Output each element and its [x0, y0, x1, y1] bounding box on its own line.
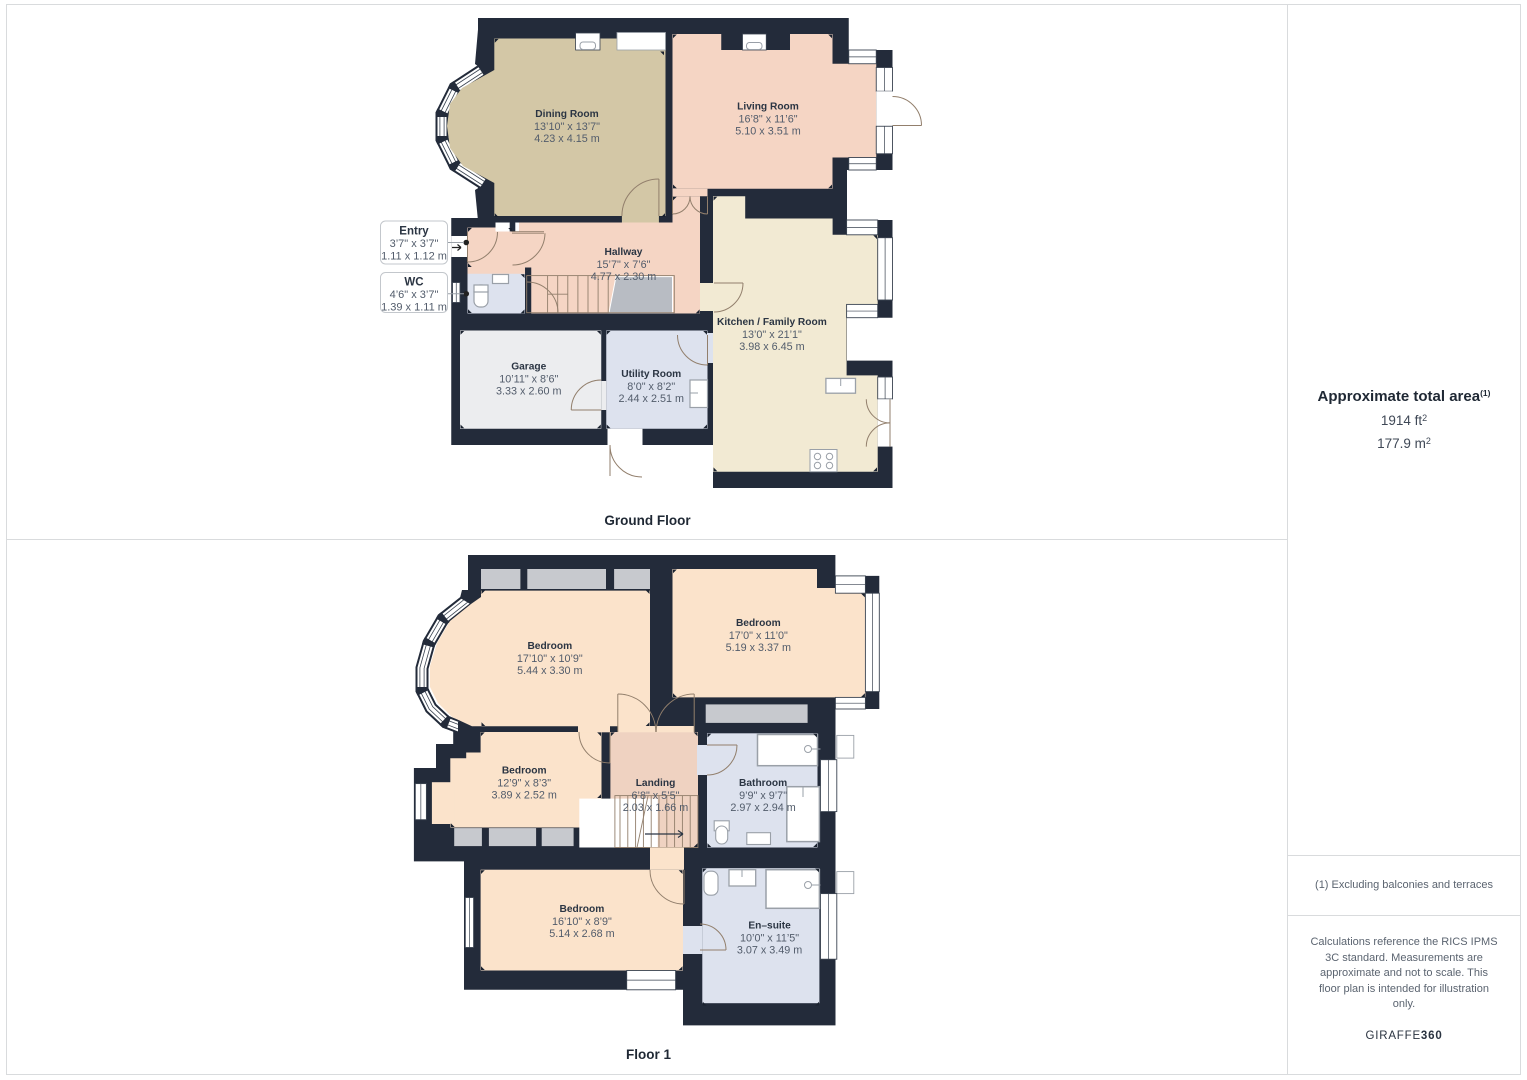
svg-text:3.89 x 2.52 m: 3.89 x 2.52 m	[491, 789, 556, 801]
svg-text:Bedroom: Bedroom	[502, 765, 547, 776]
svg-text:Landing: Landing	[636, 778, 676, 789]
svg-text:5.10 x 3.51 m: 5.10 x 3.51 m	[735, 126, 800, 138]
svg-text:Bedroom: Bedroom	[560, 904, 605, 915]
svg-text:5.14 x 2.68 m: 5.14 x 2.68 m	[549, 928, 614, 940]
svg-text:Kitchen / Family Room: Kitchen / Family Room	[717, 317, 827, 328]
svg-text:13’0" x 21’1": 13’0" x 21’1"	[742, 329, 802, 341]
svg-text:Bedroom: Bedroom	[527, 641, 572, 652]
svg-text:3’7" x 3’7": 3’7" x 3’7"	[390, 238, 439, 250]
svg-text:Living Room: Living Room	[737, 102, 799, 113]
svg-text:5.19 x 3.37 m: 5.19 x 3.37 m	[726, 642, 791, 654]
svg-text:Dining Room: Dining Room	[535, 109, 598, 120]
svg-text:Garage: Garage	[511, 362, 546, 373]
svg-text:Utility Room: Utility Room	[621, 369, 681, 380]
svg-text:16’10" x 8’9": 16’10" x 8’9"	[552, 916, 612, 928]
svg-text:4.77 x 2.30 m: 4.77 x 2.30 m	[591, 271, 656, 283]
svg-text:1.11 x 1.12 m: 1.11 x 1.12 m	[381, 251, 447, 263]
svg-text:Floor 1: Floor 1	[626, 1047, 671, 1062]
svg-text:6’8" x 5’5": 6’8" x 5’5"	[632, 790, 680, 802]
svg-text:2.97 x 2.94 m: 2.97 x 2.94 m	[730, 802, 795, 814]
svg-text:9’9" x 9’7": 9’9" x 9’7"	[739, 790, 787, 802]
svg-text:16’8" x 11’6": 16’8" x 11’6"	[738, 114, 797, 126]
svg-text:10’0" x 11’5": 10’0" x 11’5"	[740, 932, 799, 944]
svg-text:1.39 x 1.11 m: 1.39 x 1.11 m	[381, 302, 447, 314]
svg-text:3.33 x 2.60 m: 3.33 x 2.60 m	[496, 386, 561, 398]
svg-text:4’6" x 3’7": 4’6" x 3’7"	[390, 289, 439, 301]
svg-text:2.03 x 1.66 m: 2.03 x 1.66 m	[623, 802, 688, 814]
svg-text:3.98 x 6.45 m: 3.98 x 6.45 m	[739, 341, 804, 353]
svg-text:2.44 x 2.51 m: 2.44 x 2.51 m	[619, 393, 684, 405]
svg-text:Hallway: Hallway	[605, 247, 643, 258]
svg-text:En–suite: En–suite	[748, 920, 791, 931]
svg-text:Bathroom: Bathroom	[739, 778, 787, 789]
svg-text:WC: WC	[404, 277, 423, 289]
svg-text:10’11" x 8’6": 10’11" x 8’6"	[499, 374, 558, 386]
svg-text:17’0" x 11’0": 17’0" x 11’0"	[729, 630, 788, 642]
svg-text:Entry: Entry	[399, 226, 429, 238]
svg-text:17’10" x 10’9": 17’10" x 10’9"	[517, 653, 583, 665]
svg-text:4.23 x 4.15 m: 4.23 x 4.15 m	[534, 133, 599, 145]
svg-text:Bedroom: Bedroom	[736, 618, 781, 629]
svg-text:5.44 x 3.30 m: 5.44 x 3.30 m	[517, 665, 582, 677]
svg-text:3.07 x 3.49 m: 3.07 x 3.49 m	[737, 944, 802, 956]
svg-text:15’7" x 7’6": 15’7" x 7’6"	[597, 259, 651, 271]
svg-text:8’0" x 8’2": 8’0" x 8’2"	[627, 381, 675, 393]
svg-text:Ground Floor: Ground Floor	[604, 513, 691, 528]
svg-text:13’10" x 13’7": 13’10" x 13’7"	[534, 121, 600, 133]
svg-text:12’9" x 8’3": 12’9" x 8’3"	[497, 777, 551, 789]
